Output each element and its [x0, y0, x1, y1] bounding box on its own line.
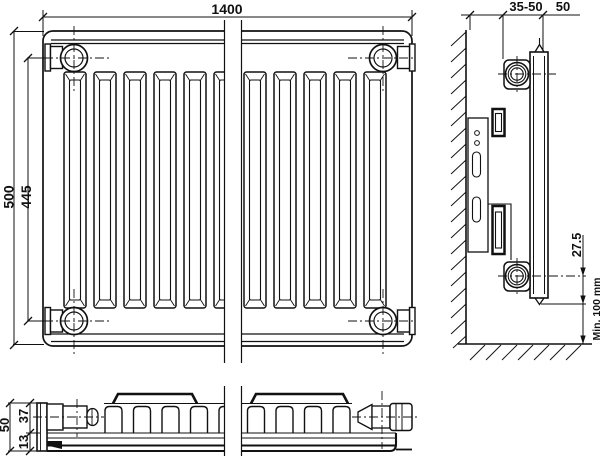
dim-label-overall-depth: 50: [0, 418, 12, 432]
dim-mounting-heights: 27.5 Min. 100 mm: [541, 233, 600, 344]
dim-wall-distance: 35-50 50: [461, 0, 580, 59]
dim-label-width: 1400: [211, 1, 242, 17]
dim-label-depth: 50: [556, 0, 570, 14]
dim-label-panel-thickness: 13: [16, 435, 31, 449]
wall-bracket: [468, 109, 511, 260]
radiator-profile: [498, 38, 586, 305]
dim-label-floor-clearance: Min. 100 mm: [591, 277, 600, 340]
dim-label-convector-depth: 37: [16, 409, 31, 423]
drawing-canvas: 1400 500 445: [0, 0, 600, 458]
dim-depths: 50 37 13: [0, 399, 40, 455]
dim-label-height: 500: [1, 185, 17, 209]
wall-hatching: [451, 32, 466, 348]
right-connection: [352, 391, 420, 449]
bracket-clip-bottom: [493, 206, 505, 254]
side-view: 35-50 50 27.5 Min. 100 mm: [451, 0, 600, 360]
dim-label-wall-distance: 35-50: [509, 0, 542, 14]
front-view: 1400 500 445: [1, 1, 417, 363]
radiator-technical-drawing: 1400 500 445: [0, 0, 600, 458]
floor-hatching: [470, 345, 581, 360]
dim-connection-spacing: 445: [18, 54, 46, 325]
bottom-view: 50 37 13: [0, 386, 420, 456]
dim-label-connection-spacing: 445: [18, 185, 34, 209]
dim-label-connection-offset: 27.5: [570, 233, 584, 257]
